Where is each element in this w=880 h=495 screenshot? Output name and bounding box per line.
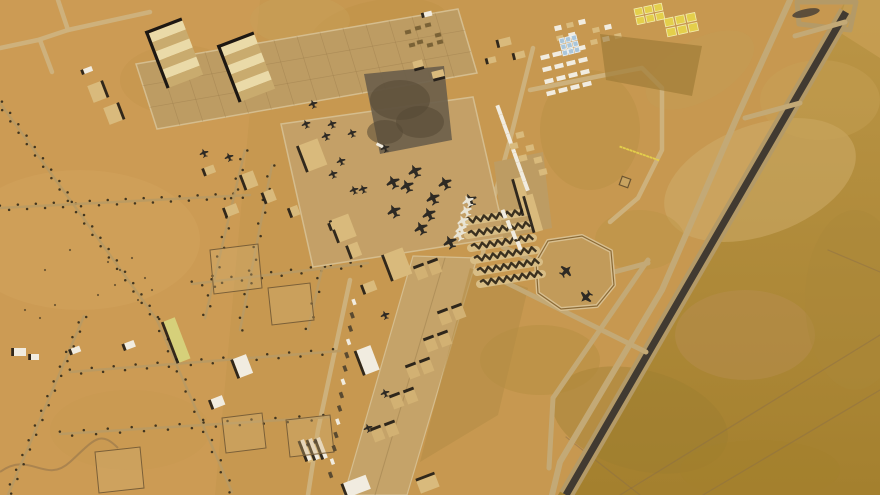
roadside-tree xyxy=(80,372,83,375)
roadside-tree xyxy=(34,146,37,149)
roadside-tree xyxy=(66,191,69,194)
roadside-tree xyxy=(35,434,38,437)
desert-brush xyxy=(119,269,121,271)
roadside-tree xyxy=(124,279,127,282)
roadside-tree xyxy=(168,365,171,368)
blue-tent xyxy=(573,41,579,47)
roadside-tree xyxy=(246,149,249,152)
roadside-tree xyxy=(274,417,277,420)
roadside-tree xyxy=(299,355,302,358)
roadside-tree xyxy=(107,427,110,430)
roadside-tree xyxy=(241,329,244,332)
roadside-tree xyxy=(224,197,227,200)
roadside-tree xyxy=(193,410,196,413)
satellite-map-viewport[interactable] xyxy=(0,0,880,495)
roadside-tree xyxy=(332,348,335,351)
roadside-tree xyxy=(71,201,74,204)
roadside-tree xyxy=(46,395,49,398)
blue-tent xyxy=(571,35,577,41)
roadside-tree xyxy=(132,290,135,293)
roadside-tree xyxy=(288,351,291,354)
roadside-tree xyxy=(85,316,88,319)
yellow-tent xyxy=(677,25,687,35)
roadside-tree xyxy=(221,236,224,239)
roadside-tree xyxy=(190,364,193,367)
roadside-tree xyxy=(148,305,151,308)
roadside-tree xyxy=(58,180,61,183)
desert-brush xyxy=(114,284,116,286)
roadside-tree xyxy=(310,266,313,269)
yellow-tent xyxy=(654,3,663,12)
roadside-tree xyxy=(200,358,203,361)
roadside-tree xyxy=(277,357,280,360)
roadside-tree xyxy=(170,200,173,203)
roadside-tree xyxy=(42,157,45,160)
roadside-tree xyxy=(15,468,18,471)
roadside-tree xyxy=(321,354,324,357)
roadside-tree xyxy=(71,434,74,437)
roadside-tree xyxy=(77,321,80,324)
roadside-tree xyxy=(190,280,193,283)
roadside-tree xyxy=(130,426,133,429)
roadside-tree xyxy=(209,305,212,308)
roadside-tree xyxy=(222,356,225,359)
desert-brush xyxy=(131,257,133,259)
yellow-tent xyxy=(675,15,685,25)
building-white xyxy=(31,354,39,360)
roadside-tree xyxy=(1,109,4,112)
yellow-tent xyxy=(686,12,696,22)
roadside-tree xyxy=(80,205,83,208)
building-white xyxy=(14,348,26,356)
roadside-tree xyxy=(40,410,43,413)
net-square-mottle xyxy=(396,106,444,138)
roadside-tree xyxy=(91,225,94,228)
roadside-tree xyxy=(83,214,86,217)
roadside-tree xyxy=(59,365,62,368)
roadside-tree xyxy=(71,336,74,339)
roadside-tree xyxy=(75,211,78,214)
roadside-tree xyxy=(246,306,249,309)
roadside-tree xyxy=(67,200,70,203)
roadside-tree xyxy=(16,478,19,481)
roadside-tree xyxy=(360,265,363,268)
yellow-tent xyxy=(646,14,655,23)
roadside-tree xyxy=(273,164,276,167)
terrain-patch xyxy=(540,70,640,190)
walled-compound xyxy=(222,413,266,453)
roadside-tree xyxy=(140,302,143,305)
roadside-tree xyxy=(50,168,53,171)
roadside-tree xyxy=(42,166,45,169)
blue-tent-grid xyxy=(559,35,580,56)
roadside-tree xyxy=(107,248,110,251)
roadside-tree xyxy=(34,154,37,157)
building-shadow xyxy=(11,348,14,356)
roadside-tree xyxy=(264,211,267,214)
roadside-tree xyxy=(26,208,29,211)
roadside-tree xyxy=(17,132,20,135)
building-white xyxy=(11,348,26,356)
desert-brush xyxy=(39,317,41,319)
roadside-tree xyxy=(266,175,269,178)
yellow-tent xyxy=(666,27,676,37)
blue-tent xyxy=(559,38,565,44)
roadside-tree xyxy=(212,362,215,365)
desert-brush xyxy=(69,249,71,251)
roadside-tree xyxy=(202,431,205,434)
desert-brush xyxy=(107,261,109,263)
roadside-tree xyxy=(241,169,244,172)
desert-brush xyxy=(151,289,153,291)
roadside-tree xyxy=(134,363,137,366)
roadside-tree xyxy=(220,459,223,462)
roadside-tree xyxy=(280,274,283,277)
roadside-tree xyxy=(201,284,204,287)
roadside-tree xyxy=(143,430,146,433)
roadside-tree xyxy=(134,202,137,205)
roadside-tree xyxy=(259,235,262,238)
roadside-tree xyxy=(220,471,223,474)
yellow-tent xyxy=(636,16,645,25)
satellite-image[interactable] xyxy=(0,0,880,495)
roadside-tree xyxy=(79,330,82,333)
desert-brush xyxy=(144,277,146,279)
roadside-tree xyxy=(239,158,242,161)
roadside-tree xyxy=(142,197,145,200)
roadside-tree xyxy=(60,375,63,378)
roadside-tree xyxy=(65,351,68,354)
roadside-tree xyxy=(140,293,143,296)
roadside-tree xyxy=(95,433,98,436)
roadside-tree xyxy=(167,428,170,431)
roadside-tree xyxy=(305,328,308,331)
roadside-tree xyxy=(9,120,12,123)
roadside-tree xyxy=(59,430,62,433)
roadside-tree xyxy=(50,177,53,180)
roadside-tree xyxy=(196,194,199,197)
roadside-tree xyxy=(69,368,72,371)
roadside-tree xyxy=(340,267,343,270)
walled-compound xyxy=(268,283,314,325)
roadside-tree xyxy=(152,201,155,204)
desert-brush xyxy=(24,309,26,311)
desert-brush xyxy=(54,304,56,306)
roadside-tree xyxy=(255,359,258,362)
roadside-tree xyxy=(21,454,24,457)
desert-brush xyxy=(137,299,139,301)
roadside-tree xyxy=(27,439,30,442)
roadside-tree xyxy=(29,448,32,451)
roadside-tree xyxy=(90,367,93,370)
blue-tent xyxy=(568,48,574,54)
roadside-tree xyxy=(239,316,242,319)
roadside-tree xyxy=(207,294,210,297)
terrain-patch xyxy=(675,290,815,380)
roadside-tree xyxy=(176,370,179,373)
roadside-tree xyxy=(184,390,187,393)
roadside-tree xyxy=(99,236,102,239)
roadside-tree xyxy=(237,188,240,191)
roadside-tree xyxy=(124,270,127,273)
roadside-tree xyxy=(266,353,269,356)
roadside-tree xyxy=(17,203,20,206)
blue-tent xyxy=(567,42,573,48)
roadside-tree xyxy=(47,404,50,407)
roadside-tree xyxy=(17,123,20,126)
blue-tent xyxy=(560,44,566,50)
roadside-tree xyxy=(310,350,313,353)
roadside-tree xyxy=(228,227,231,230)
desert-brush xyxy=(97,294,99,296)
roadside-tree xyxy=(202,314,205,317)
roadside-tree xyxy=(41,419,44,422)
walled-compound xyxy=(286,415,334,457)
roadside-tree xyxy=(54,389,57,392)
roadside-tree xyxy=(25,134,28,137)
roadside-tree xyxy=(44,207,47,210)
yellow-tent xyxy=(655,12,664,21)
roadside-tree xyxy=(158,330,161,333)
roadside-tree xyxy=(22,463,25,466)
roadside-tree xyxy=(83,222,86,225)
roadside-tree xyxy=(178,423,181,426)
roadside-tree xyxy=(318,291,321,294)
roadside-tree xyxy=(132,282,135,285)
roadside-tree xyxy=(211,451,214,454)
roadside-tree xyxy=(124,369,127,372)
roadside-tree xyxy=(34,424,37,427)
building-shadow xyxy=(28,354,31,360)
roadside-tree xyxy=(160,196,163,199)
roadside-tree xyxy=(108,256,111,259)
roadside-tree xyxy=(154,424,157,427)
roadside-tree xyxy=(270,271,273,274)
roadside-tree xyxy=(230,197,233,200)
roadside-tree xyxy=(234,177,237,180)
roadside-tree xyxy=(9,112,12,115)
blue-tent xyxy=(565,36,571,42)
roadside-tree xyxy=(214,193,217,196)
roadside-tree xyxy=(188,199,191,202)
roadside-tree xyxy=(89,200,92,203)
yellow-tent xyxy=(688,22,698,32)
roadside-tree xyxy=(83,429,86,432)
roadside-tree xyxy=(26,143,29,146)
roadside-tree xyxy=(1,100,4,103)
roadside-tree xyxy=(8,209,11,212)
roadside-tree xyxy=(119,431,122,434)
roadside-tree xyxy=(243,293,246,296)
roadside-tree xyxy=(211,439,214,442)
roadside-tree xyxy=(102,371,105,374)
walled-compound xyxy=(95,447,144,493)
roadside-tree xyxy=(290,269,293,272)
roadside-tree xyxy=(124,198,127,201)
roadside-tree xyxy=(257,222,260,225)
roadside-tree xyxy=(116,259,119,262)
roadside-tree xyxy=(106,199,109,202)
roadside-tree xyxy=(62,206,65,209)
roadside-tree xyxy=(202,421,205,424)
roadside-tree xyxy=(228,491,231,494)
roadside-tree xyxy=(66,360,69,363)
roadside-tree xyxy=(300,272,303,275)
roadside-tree xyxy=(202,419,205,422)
roadside-tree xyxy=(193,398,196,401)
roadside-tree xyxy=(35,202,38,205)
roadside-tree xyxy=(146,367,149,370)
roadside-tree xyxy=(167,350,170,353)
roadside-tree xyxy=(91,234,94,237)
roadside-tree xyxy=(149,313,152,316)
roadside-tree xyxy=(242,197,245,200)
roadside-tree xyxy=(99,245,102,248)
roadside-tree xyxy=(98,204,101,207)
roadside-tree xyxy=(316,277,319,280)
yellow-tent xyxy=(664,17,674,27)
desert-brush xyxy=(44,269,46,271)
yellow-tent xyxy=(634,7,643,16)
roadside-tree xyxy=(9,483,12,486)
building-white xyxy=(28,354,39,360)
roadside-tree xyxy=(184,378,187,381)
roadside-tree xyxy=(116,268,119,271)
roadside-tree xyxy=(178,195,181,198)
net-square-mottle xyxy=(367,120,403,144)
roadside-tree xyxy=(53,202,56,205)
blue-tent xyxy=(562,50,568,56)
roadside-tree xyxy=(156,362,159,365)
roadside-tree xyxy=(72,345,75,348)
roadside-tree xyxy=(215,425,218,428)
roadside-tree xyxy=(58,188,61,191)
blue-tent xyxy=(574,47,580,53)
roadside-tree xyxy=(112,365,115,368)
roadside-tree xyxy=(158,318,161,321)
walled-compound xyxy=(210,244,262,294)
yellow-tent xyxy=(644,5,653,14)
roadside-tree xyxy=(52,380,55,383)
roadside-tree xyxy=(206,198,209,201)
roadside-tree xyxy=(191,427,194,430)
roadside-tree xyxy=(228,479,231,482)
roadside-tree xyxy=(298,415,301,418)
roadside-tree xyxy=(116,203,119,206)
